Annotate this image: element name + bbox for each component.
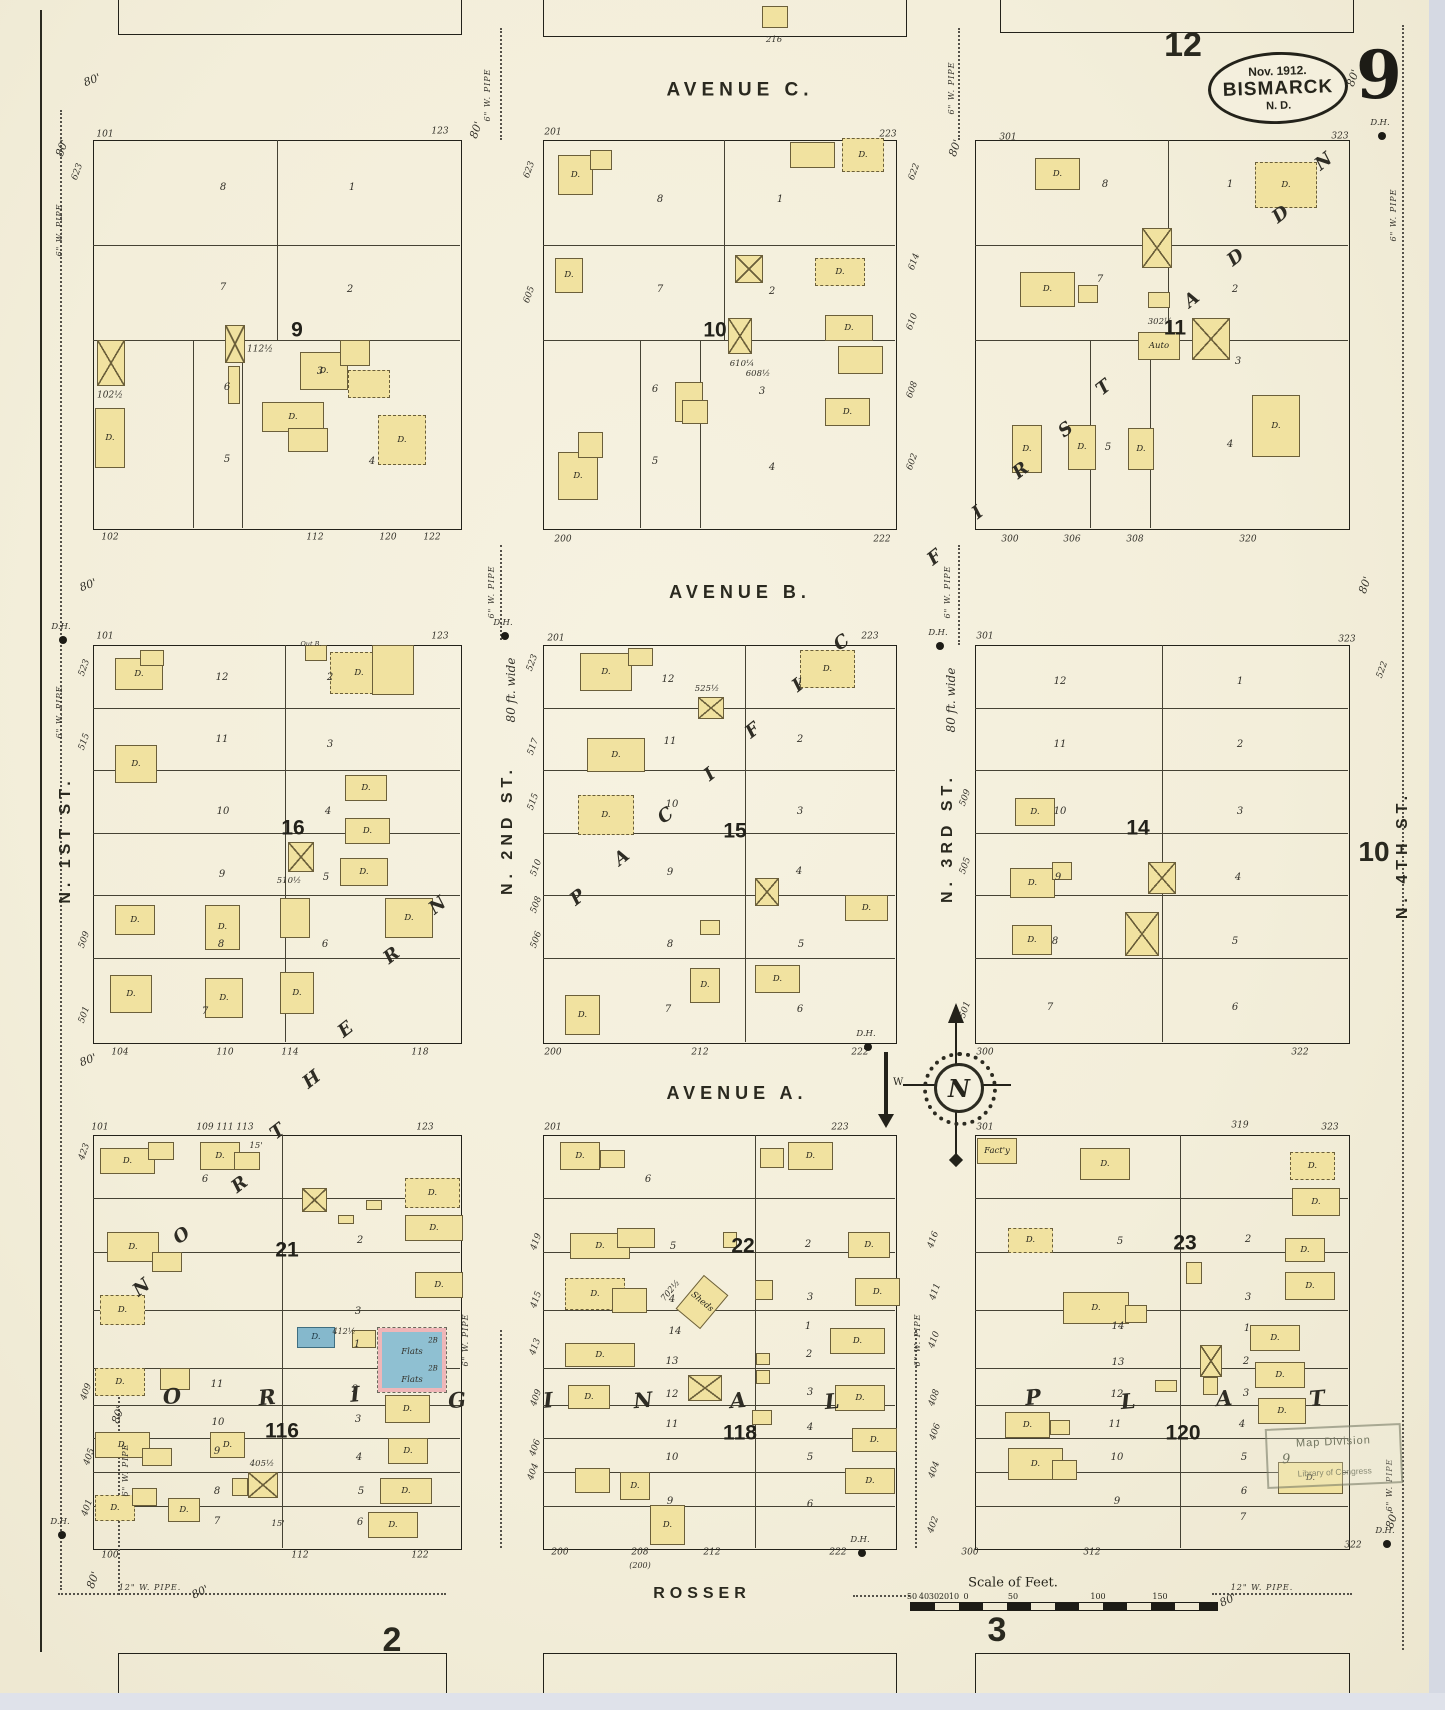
scale-tick-label: 20 bbox=[939, 1593, 949, 1601]
building bbox=[682, 400, 708, 424]
lot-line bbox=[640, 340, 641, 528]
address-number: 406 bbox=[529, 1438, 543, 1457]
lot-line bbox=[93, 958, 460, 959]
street-width-dimension: 80' bbox=[468, 120, 484, 140]
stamp-line3: Library of Congress bbox=[1297, 1465, 1372, 1478]
lot-number: 3 bbox=[807, 1388, 813, 1398]
lot-number: 4 bbox=[796, 867, 802, 877]
building-label: D. bbox=[590, 1290, 599, 1299]
hydrant-label: D.H. bbox=[51, 623, 70, 632]
lot-number: 7 bbox=[1240, 1513, 1246, 1523]
building-label: D. bbox=[1281, 181, 1290, 190]
street-label: N. 4TH ST. bbox=[1395, 791, 1411, 919]
building bbox=[688, 1375, 722, 1401]
lot-line bbox=[543, 1310, 895, 1311]
building bbox=[575, 1468, 610, 1493]
scale-tick-label: 150 bbox=[1152, 1593, 1167, 1601]
address-number: 517 bbox=[527, 737, 541, 756]
building-label: D. bbox=[105, 434, 114, 443]
pipe-label: 6" W. PIPE bbox=[948, 62, 956, 115]
lot-number: 3 bbox=[317, 367, 323, 377]
building-label: D. bbox=[864, 1241, 873, 1250]
building: D. bbox=[848, 1232, 890, 1258]
block-number: 10 bbox=[703, 320, 726, 341]
street-width-dimension: 80' bbox=[82, 72, 102, 88]
water-pipe-line bbox=[958, 545, 960, 645]
address-number: 308 bbox=[1126, 536, 1143, 545]
building bbox=[142, 1448, 172, 1466]
lot-number: 3 bbox=[1237, 807, 1243, 817]
lot-number: 2 bbox=[1245, 1235, 1251, 1245]
lot-number: 10 bbox=[217, 807, 230, 817]
street-width-dimension: 80' bbox=[947, 138, 963, 158]
address-number: 102 bbox=[101, 534, 118, 543]
building bbox=[590, 150, 612, 170]
lot-number: 5 bbox=[1117, 1237, 1123, 1247]
address-number: 101 bbox=[91, 1124, 108, 1133]
building bbox=[248, 1472, 278, 1498]
lot-number: 7 bbox=[1097, 275, 1103, 285]
lot-number: 2 bbox=[1243, 1357, 1249, 1367]
lot-number: 10 bbox=[666, 800, 679, 810]
address-number: 306 bbox=[1063, 536, 1080, 545]
hydrant-dot bbox=[936, 642, 944, 650]
plat-annotation-letter: L bbox=[824, 1390, 841, 1412]
building bbox=[600, 1150, 625, 1168]
address-number: 509 bbox=[959, 788, 973, 807]
street-continuation-arrow bbox=[884, 1052, 888, 1116]
address-number: 212 bbox=[703, 1549, 720, 1558]
building bbox=[280, 898, 310, 938]
lot-number: 4 bbox=[807, 1423, 813, 1433]
building-label: D. bbox=[118, 1306, 127, 1315]
building bbox=[700, 920, 720, 935]
block-number: 16 bbox=[281, 818, 304, 839]
building: D. bbox=[1008, 1228, 1053, 1253]
pipe-label: 6" W. PIPE bbox=[122, 1444, 130, 1497]
building: D. bbox=[755, 965, 800, 993]
building bbox=[1142, 228, 1172, 268]
building-label: D. bbox=[1300, 1246, 1309, 1255]
lot-number: 8 bbox=[220, 183, 226, 193]
building: D. bbox=[1063, 1292, 1129, 1324]
lot-number: 5 bbox=[323, 873, 329, 883]
address-number: 101 bbox=[96, 131, 113, 140]
lot-number: 10 bbox=[212, 1418, 225, 1428]
building bbox=[97, 340, 125, 386]
building bbox=[760, 1148, 784, 1168]
address-number: 402 bbox=[927, 1515, 941, 1534]
street-label: ROSSER bbox=[653, 1586, 751, 1602]
compass-monogram: N bbox=[934, 1063, 984, 1113]
building-label: D. bbox=[1026, 1236, 1035, 1245]
building-label: D. bbox=[403, 1405, 412, 1414]
lot-number: 11 bbox=[664, 737, 677, 747]
building bbox=[756, 1353, 770, 1365]
building-label: D. bbox=[630, 1482, 639, 1491]
map-note: 302½ bbox=[1148, 318, 1172, 327]
building: D. bbox=[340, 858, 388, 886]
building-label: D. bbox=[595, 1351, 604, 1360]
building: D. bbox=[380, 1478, 432, 1504]
street-label: N. 3RD ST. bbox=[940, 773, 956, 903]
lot-number: 8 bbox=[214, 1487, 220, 1497]
street-width-dimension: 80' bbox=[54, 138, 70, 158]
lot-number: 3 bbox=[355, 1415, 361, 1425]
hydrant-label: D.H. bbox=[928, 629, 947, 638]
building: D. bbox=[580, 653, 632, 691]
building: D. bbox=[1290, 1152, 1335, 1180]
building-label: Auto bbox=[1149, 342, 1169, 351]
scale-tick-label: 10 bbox=[949, 1593, 959, 1601]
block-number: 23 bbox=[1173, 1233, 1196, 1254]
lot-line bbox=[1162, 645, 1163, 1042]
scale-tick-label: 100 bbox=[1090, 1593, 1105, 1601]
building: D. bbox=[115, 905, 155, 935]
address-number: 515 bbox=[78, 732, 92, 751]
building-label: D. bbox=[288, 413, 297, 422]
address-number: 623 bbox=[71, 162, 85, 181]
lot-line bbox=[543, 1506, 895, 1507]
pipe-label: 12" W. PIPE. bbox=[119, 1584, 182, 1592]
building-label: D. bbox=[575, 1152, 584, 1161]
building: D. bbox=[558, 155, 593, 195]
lot-number: 6 bbox=[807, 1500, 813, 1510]
map-note: 405½ bbox=[250, 1460, 274, 1469]
lot-number: 1 bbox=[354, 1340, 360, 1350]
building-label: D. bbox=[292, 989, 301, 998]
address-number: 122 bbox=[411, 1552, 428, 1561]
building-label: D. bbox=[663, 1521, 672, 1530]
map-note: 510½ bbox=[277, 877, 301, 886]
building-label: D. bbox=[1023, 1421, 1032, 1430]
street-width-dimension: 80' bbox=[1357, 575, 1373, 595]
lot-number: 2 bbox=[347, 285, 353, 295]
building-label: D. bbox=[1277, 1407, 1286, 1416]
lot-number: 3 bbox=[1245, 1293, 1251, 1303]
lot-number: 9 bbox=[219, 870, 225, 880]
hydrant-dot bbox=[501, 632, 509, 640]
lot-number: 6 bbox=[224, 383, 230, 393]
building bbox=[288, 842, 314, 872]
building-label: D. bbox=[853, 1337, 862, 1346]
address-number: 301 bbox=[999, 134, 1016, 143]
lot-number: 6 bbox=[1241, 1487, 1247, 1497]
sanborn-map-sheet: D.D.D.D.D.D.D.D.D.D.D.D.D.D.AutoD.D.D.D.… bbox=[0, 0, 1445, 1710]
building: D. bbox=[1285, 1238, 1325, 1262]
plat-annotation-letter: G bbox=[447, 1389, 467, 1411]
building: D. bbox=[415, 1272, 463, 1298]
lot-number: 6 bbox=[322, 940, 328, 950]
building bbox=[698, 697, 724, 719]
lot-number: 11 bbox=[211, 1380, 224, 1390]
map-note: 412½ bbox=[332, 1328, 355, 1336]
building-label: D. bbox=[700, 981, 709, 990]
building: D. bbox=[95, 408, 125, 468]
building: D. bbox=[345, 775, 387, 801]
building-label: D. bbox=[1136, 445, 1145, 454]
address-number: 208 bbox=[631, 1549, 648, 1558]
lot-number: 7 bbox=[202, 1007, 208, 1017]
building-label: D. bbox=[397, 436, 406, 445]
scale-tick-label: 0 bbox=[963, 1593, 968, 1601]
building bbox=[755, 1280, 773, 1300]
address-number: 323 bbox=[1338, 636, 1355, 645]
map-note: 216 bbox=[766, 36, 782, 45]
map-note: (200) bbox=[629, 1562, 651, 1570]
building bbox=[366, 1200, 382, 1210]
building-label: D. bbox=[1028, 879, 1037, 888]
building: D. bbox=[1010, 868, 1055, 898]
street-width-note: 80 ft. wide bbox=[945, 668, 957, 733]
lot-number: 14 bbox=[669, 1327, 682, 1337]
street-width-dimension: 80' bbox=[78, 577, 98, 593]
lot-number: 2 bbox=[1237, 740, 1243, 750]
building: D. bbox=[405, 1178, 460, 1208]
lot-number: 12 bbox=[216, 673, 229, 683]
city-block-partial bbox=[543, 1653, 897, 1696]
scale-label: Scale of Feet. bbox=[968, 1576, 1058, 1591]
scale-tick-label: 30 bbox=[929, 1593, 939, 1601]
address-number: 200 bbox=[554, 536, 571, 545]
building bbox=[628, 648, 653, 666]
map-note: 525½ bbox=[695, 685, 719, 694]
building-label: D. bbox=[1043, 285, 1052, 294]
plat-annotation-letter: I bbox=[542, 1389, 554, 1411]
lot-line bbox=[543, 1438, 895, 1439]
address-number: 222 bbox=[829, 1549, 846, 1558]
address-number: 608 bbox=[906, 380, 920, 399]
address-number: 300 bbox=[961, 1549, 978, 1558]
stamp-line2: 9 bbox=[1282, 1451, 1291, 1466]
address-number: 610 bbox=[906, 312, 920, 331]
address-number: 320 bbox=[1239, 536, 1256, 545]
building: D. bbox=[378, 415, 426, 465]
building: D. bbox=[845, 895, 888, 921]
building-label: D. bbox=[1275, 1371, 1284, 1380]
pipe-label: 6" W. PIPE bbox=[1390, 189, 1398, 242]
street-width-note: 80 ft. wide bbox=[505, 658, 517, 723]
building-label: D. bbox=[573, 472, 582, 481]
lot-line bbox=[277, 140, 278, 340]
address-number: 423 bbox=[78, 1142, 92, 1161]
building: D. bbox=[650, 1505, 685, 1545]
address-number: 200 bbox=[544, 1049, 561, 1058]
pipe-label: 6" W. PIPE bbox=[914, 1314, 922, 1367]
hydrant-dot bbox=[1383, 1540, 1391, 1548]
scale-tick-label: 50 bbox=[907, 1593, 917, 1601]
lot-line bbox=[282, 1135, 283, 1548]
hydrant-dot bbox=[864, 1043, 872, 1051]
lot-line bbox=[93, 708, 460, 709]
building bbox=[152, 1252, 182, 1272]
lot-number: 5 bbox=[798, 940, 804, 950]
building-label: D. bbox=[1022, 445, 1031, 454]
building: D. bbox=[110, 975, 152, 1013]
block-number: 116 bbox=[265, 1421, 299, 1442]
pipe-label: 6" W. PIPE bbox=[56, 204, 64, 257]
building bbox=[1125, 1305, 1147, 1323]
lot-number: 11 bbox=[1109, 1420, 1122, 1430]
building-label: D. bbox=[110, 1504, 119, 1513]
address-number: 602 bbox=[906, 452, 920, 471]
building: D. bbox=[1258, 1398, 1306, 1424]
building bbox=[1078, 285, 1098, 303]
scale-tick-label: 40 bbox=[919, 1593, 929, 1601]
building-label: D. bbox=[179, 1506, 188, 1515]
compass-west-label: W bbox=[893, 1077, 903, 1088]
state-name: N. D. bbox=[1266, 100, 1291, 113]
lot-number: 9 bbox=[667, 1497, 673, 1507]
city-block-partial bbox=[118, 0, 462, 35]
lot-number: 11 bbox=[1054, 740, 1067, 750]
address-number: 300 bbox=[1001, 536, 1018, 545]
lot-number: 3 bbox=[807, 1293, 813, 1303]
building: D. bbox=[385, 1395, 430, 1423]
address-number: 622 bbox=[908, 162, 922, 181]
lot-number: 11 bbox=[216, 735, 229, 745]
lot-line bbox=[975, 1506, 1348, 1507]
lot-number: 8 bbox=[667, 940, 673, 950]
building bbox=[302, 1188, 327, 1212]
building-label: D. bbox=[130, 916, 139, 925]
building bbox=[838, 346, 883, 374]
address-number: 322 bbox=[1291, 1049, 1308, 1058]
address-number: 112 bbox=[306, 534, 323, 543]
building-label: D. bbox=[858, 151, 867, 160]
building bbox=[617, 1228, 655, 1248]
paper-edge-right bbox=[1429, 0, 1445, 1710]
address-number: 212 bbox=[691, 1049, 708, 1058]
lot-number: 14 bbox=[1112, 1322, 1125, 1332]
left-neatline bbox=[40, 10, 42, 1652]
address-number: 319 bbox=[1231, 1122, 1248, 1131]
building-label: D. bbox=[1308, 1162, 1317, 1171]
building bbox=[612, 1288, 647, 1313]
address-number: 416 bbox=[927, 1230, 941, 1249]
building-label: D. bbox=[1053, 170, 1062, 179]
building: D. bbox=[825, 398, 870, 426]
building-label: D. bbox=[611, 751, 620, 760]
address-number: 523 bbox=[526, 653, 540, 672]
building: D. bbox=[115, 745, 157, 783]
building bbox=[1200, 1345, 1222, 1377]
hydrant-dot bbox=[1378, 132, 1386, 140]
compass-rose-icon: N W bbox=[895, 1005, 1025, 1165]
lot-number: 1 bbox=[349, 183, 355, 193]
block-number: 22 bbox=[731, 1236, 754, 1257]
address-number: 301 bbox=[976, 633, 993, 642]
building: D. bbox=[578, 795, 634, 835]
scale-bar bbox=[910, 1602, 1218, 1611]
building: D. bbox=[825, 315, 873, 341]
lot-number: 13 bbox=[1112, 1358, 1125, 1368]
plat-annotation-letter: H bbox=[300, 1068, 324, 1093]
building-label: D. bbox=[564, 271, 573, 280]
building-label: D. bbox=[134, 670, 143, 679]
lot-number: 7 bbox=[1047, 1003, 1053, 1013]
city-block-partial bbox=[543, 0, 907, 37]
lot-number: 5 bbox=[358, 1487, 364, 1497]
building-label: D. bbox=[601, 668, 610, 677]
building: D. bbox=[100, 1148, 155, 1174]
building bbox=[790, 142, 835, 168]
lot-line bbox=[755, 1135, 756, 1548]
building: D. bbox=[368, 1512, 418, 1538]
lot-number: 12 bbox=[666, 1390, 679, 1400]
address-number: 411 bbox=[929, 1282, 943, 1301]
map-note: 15' bbox=[271, 1520, 284, 1529]
building-label: D. bbox=[862, 904, 871, 913]
lot-number: 6 bbox=[1232, 1003, 1238, 1013]
lot-number: 6 bbox=[202, 1175, 208, 1185]
address-number: 523 bbox=[78, 658, 92, 677]
building: D. bbox=[1255, 162, 1317, 208]
city-name: BISMARCK bbox=[1222, 76, 1333, 102]
address-number: 515 bbox=[527, 792, 541, 811]
street-label: N. 2ND ST. bbox=[500, 765, 516, 895]
lot-number: 1 bbox=[805, 1322, 811, 1332]
building: D. bbox=[565, 1343, 635, 1367]
building bbox=[140, 650, 164, 666]
lot-number: 5 bbox=[1241, 1453, 1247, 1463]
street-width-dimension: 80' bbox=[85, 1570, 101, 1590]
city-block-partial bbox=[118, 1653, 447, 1696]
lot-number: 6 bbox=[645, 1175, 651, 1185]
lot-line bbox=[1180, 1135, 1181, 1548]
lot-number: 4 bbox=[325, 807, 331, 817]
street-width-dimension: 80' bbox=[190, 1583, 210, 1600]
adjacent-sheet-number: 12 bbox=[1164, 28, 1202, 62]
building bbox=[735, 255, 763, 283]
building bbox=[340, 340, 370, 366]
building-label: D. bbox=[1271, 422, 1280, 431]
building: D. bbox=[1255, 1362, 1305, 1388]
address-number: 614 bbox=[908, 252, 922, 271]
building-label: D. bbox=[123, 1157, 132, 1166]
lot-number: 4 bbox=[1239, 1420, 1245, 1430]
lot-number: 10 bbox=[666, 1453, 679, 1463]
building: D. bbox=[95, 1495, 135, 1521]
lot-line bbox=[242, 340, 243, 528]
building-label: D. bbox=[363, 827, 372, 836]
lot-number: 1 bbox=[1237, 677, 1243, 687]
address-number: 110 bbox=[216, 1049, 233, 1058]
address-number: 410 bbox=[928, 1330, 942, 1349]
lot-number: 3 bbox=[355, 1307, 361, 1317]
lot-number: 8 bbox=[218, 940, 224, 950]
address-number: 223 bbox=[831, 1124, 848, 1133]
lot-number: 5 bbox=[652, 457, 658, 467]
water-pipe-line bbox=[500, 28, 502, 140]
building-label: D. bbox=[1100, 1160, 1109, 1169]
lot-number: 10 bbox=[1054, 807, 1067, 817]
street-label: N. 1ST ST. bbox=[58, 776, 74, 903]
lot-number: 8 bbox=[1102, 180, 1108, 190]
building-label: D. bbox=[1031, 1460, 1040, 1469]
lot-line bbox=[543, 1368, 895, 1369]
building: D. bbox=[388, 1438, 428, 1464]
building bbox=[1052, 1460, 1077, 1480]
address-number: 623 bbox=[523, 160, 537, 179]
lot-number: 12 bbox=[662, 675, 675, 685]
building-label: D. bbox=[218, 923, 227, 932]
building bbox=[225, 325, 245, 363]
building bbox=[132, 1488, 157, 1506]
plat-annotation-letter: A bbox=[729, 1389, 747, 1411]
lot-number: 7 bbox=[665, 1005, 671, 1015]
water-pipe-line bbox=[958, 28, 960, 140]
